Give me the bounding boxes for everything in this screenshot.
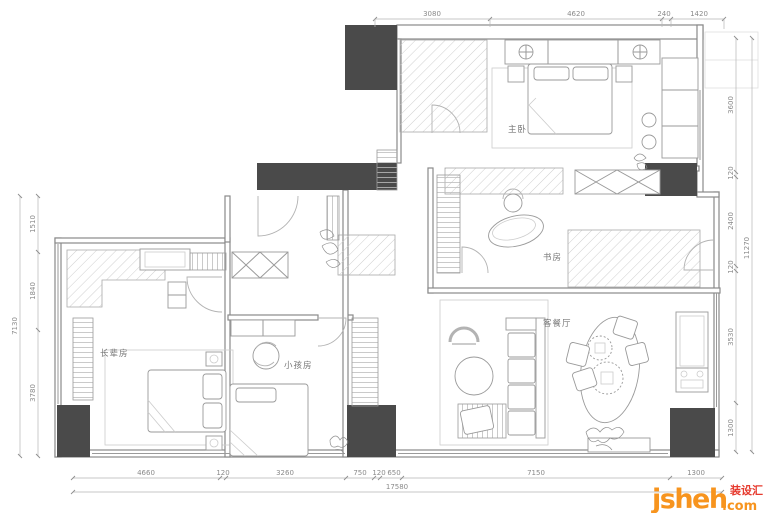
- master-bedroom: 主卧: [492, 40, 698, 170]
- column-bottom-left: [57, 405, 90, 457]
- floor-plan: 主卧 书房 长辈房: [0, 0, 770, 513]
- living-dining: 客餐厅: [440, 300, 708, 452]
- pillow: [203, 374, 222, 399]
- hatch-entry: [338, 235, 395, 275]
- dim-value: 1420: [690, 10, 708, 18]
- dim-bottom: 4660 120 3260 750 120 650 7150 1300 1758…: [71, 469, 724, 494]
- dim-value: 240: [657, 10, 670, 18]
- armchair: [450, 328, 478, 342]
- column-bottom-right: [670, 408, 715, 457]
- plate: [591, 362, 623, 394]
- room-label-master: 主卧: [508, 124, 527, 135]
- dim-total: 7130: [11, 317, 19, 335]
- column-bottom-mid: [347, 405, 396, 457]
- dim-value: 750: [353, 469, 366, 477]
- dim-value: 120: [216, 469, 229, 477]
- room-label-elder: 长辈房: [100, 348, 129, 359]
- dim-value: 3600: [727, 96, 735, 114]
- watermark-site: jsheh: [651, 484, 727, 513]
- dim-value: 120: [727, 260, 735, 273]
- pillow: [534, 67, 569, 80]
- plate: [588, 336, 612, 360]
- pillow: [573, 67, 608, 80]
- dim-value: 1300: [727, 419, 735, 437]
- kids-wardrobe: [352, 318, 378, 406]
- sofa-cushion: [508, 359, 535, 383]
- dim-value: 2400: [727, 212, 735, 230]
- study-door: [462, 247, 488, 273]
- entry-cabinet: [377, 150, 397, 190]
- dim-value: 1840: [29, 282, 37, 300]
- room-label-kids: 小孩房: [284, 360, 313, 371]
- elder-room-door: [187, 277, 222, 312]
- watermark-logo: jsheh .com 装设汇: [651, 483, 763, 513]
- nightstand: [206, 436, 222, 450]
- column-top-left: [345, 25, 397, 90]
- dim-value: 4660: [137, 469, 155, 477]
- elder-wardrobe: [73, 318, 93, 400]
- stool: [642, 113, 656, 127]
- study-cabinet: [575, 170, 660, 194]
- sofa-back: [536, 318, 545, 438]
- dim-left: 1510 1840 3780 7130: [11, 194, 40, 458]
- shoe-cabinet: [232, 252, 288, 278]
- hatch-master-closet: [400, 40, 487, 132]
- study-desk: [485, 210, 547, 253]
- entry-door: [258, 196, 298, 236]
- dim-right: 3600 120 2400 120 3530 1300 11270: [727, 36, 754, 454]
- dim-value: 4620: [567, 10, 585, 18]
- nightstand: [508, 66, 524, 82]
- sofa-cushion: [508, 333, 535, 357]
- dim-value: 7150: [527, 469, 545, 477]
- study-wardrobe: [437, 175, 460, 273]
- pillow: [236, 388, 276, 402]
- stool: [642, 135, 656, 149]
- pillow: [203, 403, 222, 428]
- dim-value: 650: [387, 469, 400, 477]
- elder-room: 长辈房: [73, 318, 233, 450]
- watermark-cn: 装设汇: [729, 483, 763, 497]
- master-dresser: [662, 58, 698, 158]
- dim-value: 120: [727, 166, 735, 179]
- dining-chair: [625, 342, 649, 366]
- dim-total: 17580: [386, 483, 408, 491]
- dim-value: 1510: [29, 215, 37, 233]
- nightstand: [206, 352, 222, 366]
- sofa-arm: [506, 318, 536, 330]
- desk-chair: [504, 194, 522, 212]
- column-mid-bar: [257, 163, 397, 190]
- dim-value: 120: [372, 469, 385, 477]
- room-label-living: 客餐厅: [543, 318, 572, 329]
- dim-value: 1300: [687, 469, 705, 477]
- hatch-study-top: [445, 168, 563, 194]
- kids-room-door: [318, 318, 346, 346]
- floor-plan-canvas: 主卧 书房 长辈房: [0, 0, 770, 513]
- dim-total: 11270: [743, 237, 751, 259]
- watermark-tld: .com: [722, 499, 757, 513]
- dim-value: 3530: [727, 328, 735, 346]
- sofa-cushion: [508, 411, 535, 435]
- dim-value: 3080: [423, 10, 441, 18]
- room-label-study: 书房: [543, 252, 562, 263]
- nightstand: [616, 66, 632, 82]
- hatch-study-east: [568, 230, 700, 287]
- hall-shelf: [190, 253, 226, 270]
- dim-value: 3780: [29, 384, 37, 402]
- coffee-table: [455, 357, 493, 395]
- dim-value: 3260: [276, 469, 294, 477]
- sofa-cushion: [508, 385, 535, 409]
